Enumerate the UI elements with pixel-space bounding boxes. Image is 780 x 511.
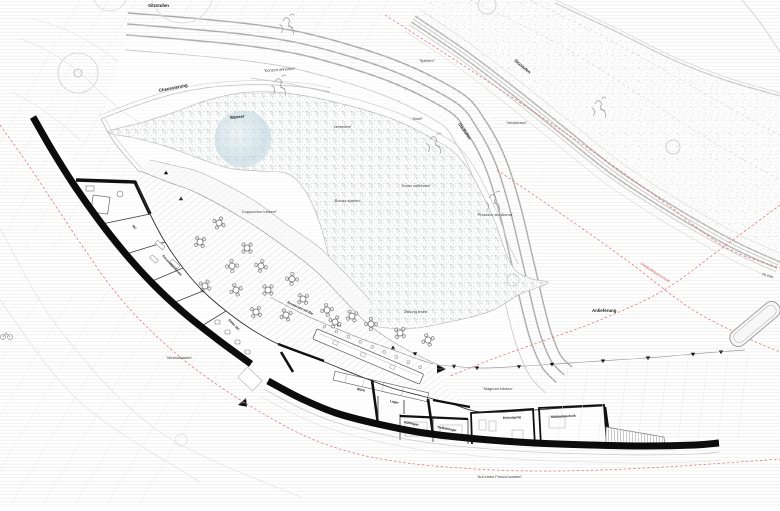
svg-text:Sitzstufen: Sitzstufen bbox=[148, 3, 169, 8]
svg-text:'Velofahren!': 'Velofahren!' bbox=[506, 120, 527, 125]
svg-text:'Kunst vorführen!': 'Kunst vorführen!' bbox=[401, 183, 431, 188]
svg-text:'Picassco am Abend': 'Picassco am Abend' bbox=[477, 212, 513, 217]
svg-text:'Verkaufsladen': 'Verkaufsladen' bbox=[166, 355, 192, 360]
svg-text:'Spielen!': 'Spielen!' bbox=[419, 58, 435, 63]
svg-text:'Auf einen Freund warten!': 'Auf einen Freund warten!' bbox=[477, 474, 522, 479]
svg-text:Anlieferung: Anlieferung bbox=[592, 308, 617, 313]
svg-text:'verweilen!': 'verweilen!' bbox=[333, 124, 352, 129]
svg-text:'Boccia spielen': 'Boccia spielen' bbox=[334, 198, 361, 203]
svg-text:'Magnum klicken': 'Magnum klicken' bbox=[483, 386, 513, 391]
svg-text:'Zeitung lesen': 'Zeitung lesen' bbox=[403, 309, 428, 314]
svg-text:'Cappuccino trinken!': 'Cappuccino trinken!' bbox=[241, 209, 277, 214]
svg-text:'Insel!': 'Insel!' bbox=[412, 116, 423, 121]
